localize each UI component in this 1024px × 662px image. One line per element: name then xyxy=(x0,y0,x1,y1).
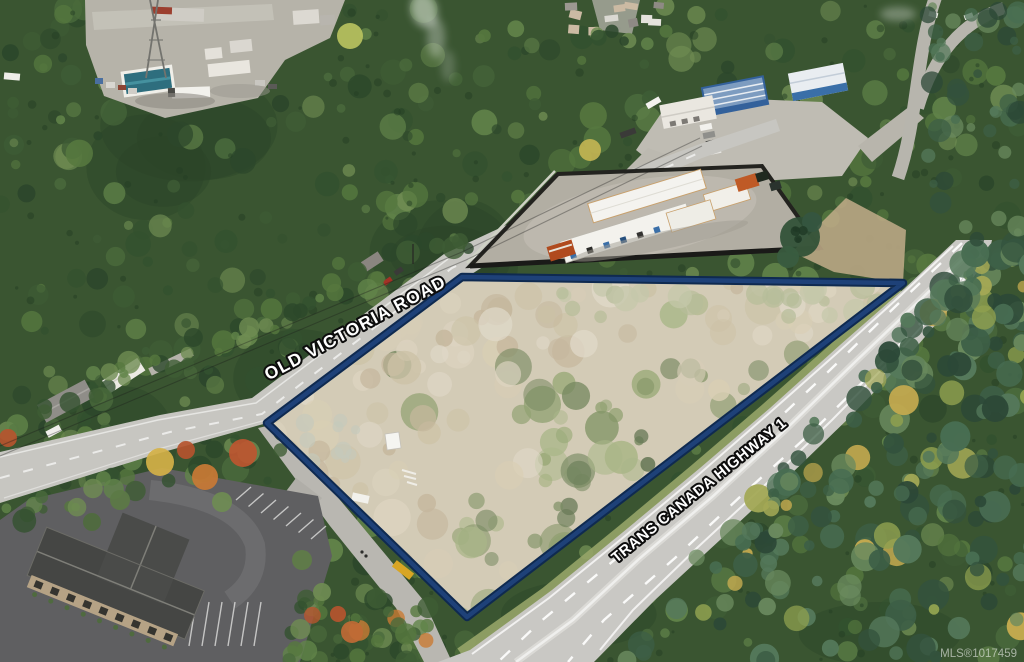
red-railcars xyxy=(152,7,172,15)
parked-vehicle xyxy=(106,82,115,88)
person-dot xyxy=(364,554,367,557)
shed-d xyxy=(320,14,336,25)
white-rv xyxy=(4,72,21,80)
parked-vehicle xyxy=(118,85,126,90)
shed-b xyxy=(229,39,252,53)
parked-vehicle xyxy=(255,80,265,86)
mls-watermark: MLS®1017459 xyxy=(940,648,1017,660)
aerial-photo-canvas: OLD VICTORIA ROAD TRANS CANADA HIGHWAY 1… xyxy=(0,0,1024,662)
shed-c xyxy=(293,9,320,25)
aerial-listing-photo: OLD VICTORIA ROAD TRANS CANADA HIGHWAY 1… xyxy=(0,0,1024,662)
parked-vehicle xyxy=(128,88,137,94)
shed-a xyxy=(205,47,223,60)
yard-stain xyxy=(210,84,270,98)
parked-vehicle xyxy=(268,84,277,89)
person-dot xyxy=(360,550,363,553)
yard-stain xyxy=(135,93,215,109)
commercial-site xyxy=(0,468,332,662)
parked-vehicle xyxy=(95,78,103,84)
